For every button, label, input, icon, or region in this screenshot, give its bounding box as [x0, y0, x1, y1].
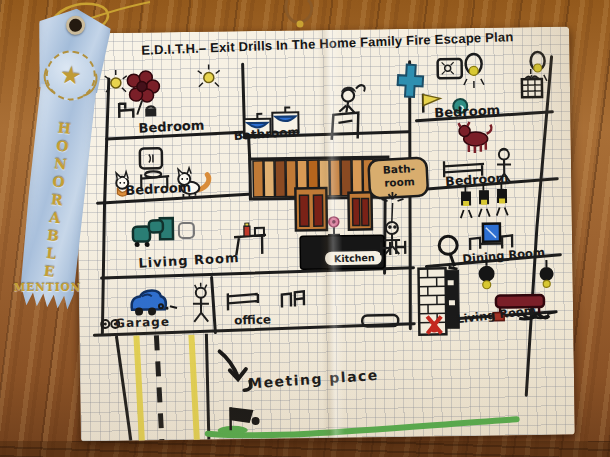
- road: [116, 334, 208, 441]
- brown-cord: [286, 0, 312, 22]
- room-label-bedroom-mid-left: Bedroom: [125, 180, 192, 198]
- sun-doodle-2: [198, 64, 220, 86]
- blue-picture-doodle: [483, 224, 500, 242]
- car-doodle: [131, 290, 177, 316]
- dog-doodle: [458, 122, 491, 153]
- room-label-bedroom-top-left: Bedroom: [138, 118, 205, 136]
- bed-chair-doodle: [119, 103, 133, 118]
- meeting-arrow: [220, 351, 251, 390]
- white-square-doodle: [179, 223, 194, 238]
- hanging-lamp-doodle-1: [464, 54, 484, 88]
- picture-frame-doodle-2: [438, 59, 462, 78]
- office-desk-doodle: [228, 293, 258, 310]
- chairs-doodle: [282, 291, 304, 307]
- picture-frame-doodle: [140, 148, 162, 168]
- couch-doodle: [133, 220, 163, 247]
- room-label-office: office: [234, 312, 271, 327]
- shower-person-doodle: [331, 85, 366, 140]
- room-label-garage: Garage: [115, 315, 170, 331]
- gold-clasp: [297, 21, 304, 28]
- escape-plan-paper: E.D.I.T.H.– Exit Drills In The Home Fami…: [75, 27, 575, 442]
- lamp-doodle-2: [539, 260, 553, 288]
- hanging-figures-doodle: [460, 182, 507, 218]
- room-label-bathroom-center: Bath- room: [375, 162, 424, 191]
- floor-plank-edge: [0, 441, 610, 457]
- blue-cross-doodle: [397, 64, 424, 97]
- pot-doodle: [145, 106, 156, 116]
- basket-doodle: [522, 69, 542, 97]
- stick-figure-1: [193, 283, 210, 322]
- fireplace-bricks-doodle: [418, 268, 459, 335]
- star-icon: ★: [59, 63, 83, 89]
- ribbon-text-mention: MENTION: [9, 281, 87, 293]
- room-label-kitchen: Kitchen: [328, 252, 380, 265]
- wood-floor: E.D.I.T.H.– Exit Drills In The Home Fami…: [0, 0, 610, 457]
- room-label-bedroom-top-right: Bedroom: [434, 102, 501, 120]
